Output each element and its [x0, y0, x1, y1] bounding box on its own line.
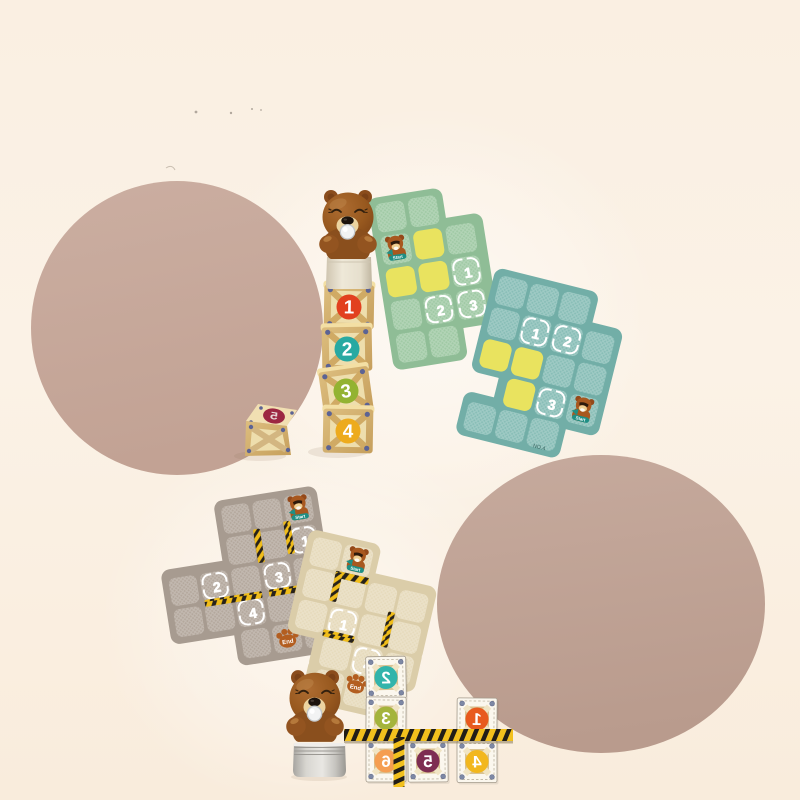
svg-text:5: 5 — [423, 752, 433, 771]
svg-text:3: 3 — [381, 709, 391, 728]
svg-text:6: 6 — [381, 752, 390, 771]
svg-text:4: 4 — [472, 753, 482, 772]
svg-text:2: 2 — [381, 668, 391, 687]
svg-text:1: 1 — [344, 297, 355, 318]
svg-text:1: 1 — [472, 710, 482, 729]
svg-text:2: 2 — [342, 339, 353, 360]
svg-text:4: 4 — [343, 421, 354, 442]
